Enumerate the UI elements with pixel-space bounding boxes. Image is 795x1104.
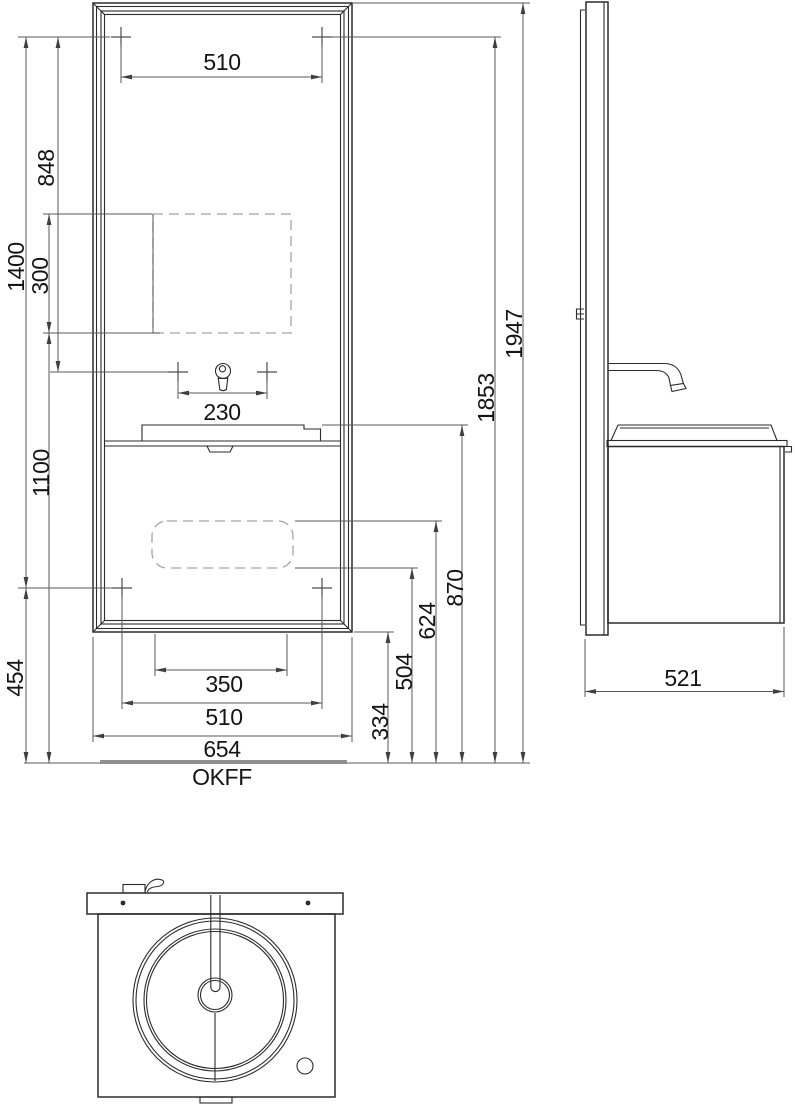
technical-drawing-canvas: OKFF 510 230 35: [0, 0, 795, 1104]
dim-label-454: 454: [2, 659, 28, 697]
dim-label-1400: 1400: [3, 242, 29, 292]
dim-label-504: 504: [391, 653, 417, 691]
dim-label-870: 870: [442, 569, 468, 606]
wall-rail-top: [87, 879, 343, 914]
dim-label-624: 624: [414, 602, 440, 640]
extension-lines: [18, 3, 784, 763]
dim-label-230: 230: [203, 399, 240, 425]
dim-label-1100: 1100: [28, 449, 54, 497]
dim-label-1947: 1947: [501, 309, 527, 359]
cabinet-side: [608, 447, 784, 624]
floor-line-okff: OKFF: [100, 762, 347, 790]
installation-niche-dashed: [153, 214, 291, 333]
latch-bar: [123, 885, 145, 894]
frame-miter-corners: [93, 3, 352, 632]
dim-label-334: 334: [367, 703, 393, 741]
drain-top: [198, 895, 232, 1012]
basin-circles-top: [133, 918, 297, 1082]
washbasin-counter-front: [105, 425, 341, 452]
dim-label-300: 300: [27, 257, 53, 294]
floor-label: OKFF: [192, 764, 252, 790]
mirror-glass-layer: [581, 10, 586, 625]
latch-hook: [145, 879, 164, 892]
tap-hole: [297, 1058, 313, 1074]
dim-label-510-top: 510: [203, 49, 240, 75]
mounting-crosses: [111, 27, 332, 598]
bottom-tab: [200, 1097, 232, 1103]
dim-label-1853: 1853: [473, 373, 499, 423]
dim-label-350: 350: [205, 671, 242, 697]
top-view: [87, 879, 343, 1103]
faucet-spout-side: [608, 364, 686, 392]
screw-dot: [306, 901, 311, 906]
drain-lever: [207, 446, 233, 452]
dim-label-521: 521: [664, 665, 701, 691]
technical-drawing-page: OKFF 510 230 35: [0, 0, 795, 1104]
faucet-spout-front: [218, 378, 228, 390]
dimensions: OKFF 510 230 35: [2, 3, 784, 790]
mirror-frame: [93, 3, 352, 632]
basin-deck: [142, 425, 321, 441]
wall-panel-side: [577, 2, 609, 635]
dim-label-848: 848: [33, 149, 59, 186]
dim-label-654: 654: [203, 736, 241, 762]
washbasin-side: [607, 425, 792, 452]
faucet-front: [216, 364, 231, 391]
screw-dot: [121, 901, 126, 906]
cabinet-cutout-dashed: [152, 521, 293, 568]
dim-label-510-bottom: 510: [205, 704, 242, 730]
faucet-pipe-top: [211, 895, 220, 992]
front-view: [93, 3, 352, 632]
counter-bracket: [785, 447, 792, 453]
side-view: [577, 2, 792, 635]
